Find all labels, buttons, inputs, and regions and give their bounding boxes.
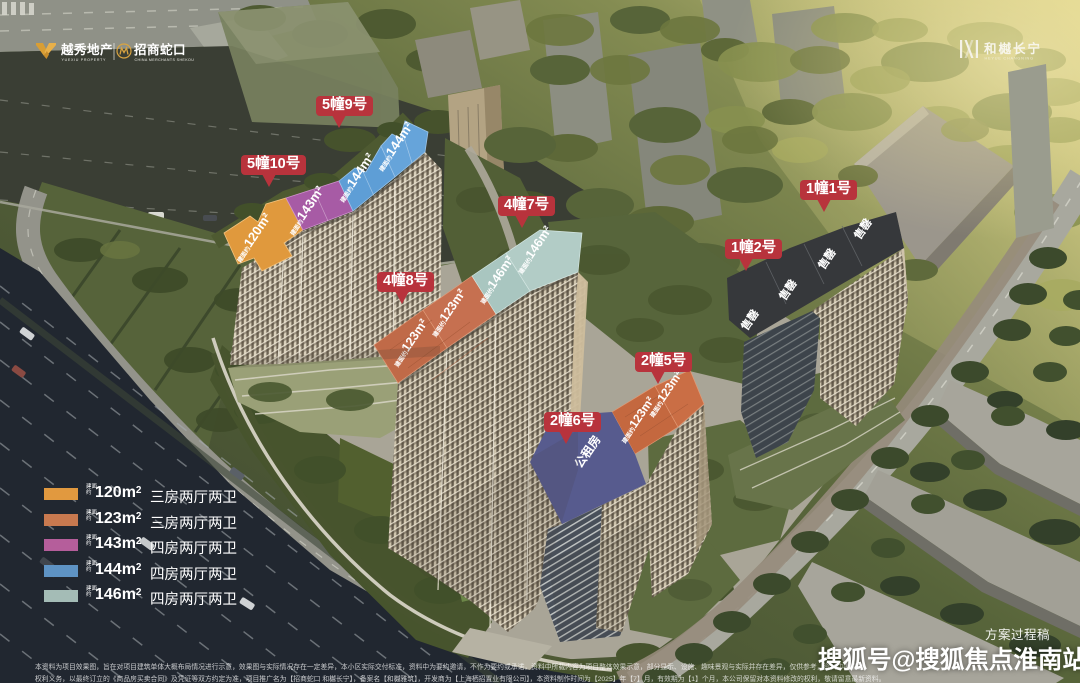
svg-text:YUEXIU PROPERTY: YUEXIU PROPERTY [62,58,107,62]
svg-text:招商蛇口: 招商蛇口 [134,42,186,57]
svg-text:HEYUE CHANGNING: HEYUE CHANGNING [985,57,1034,61]
svg-text:越秀地产: 越秀地产 [60,42,113,57]
svg-text:和樾长宁: 和樾长宁 [983,41,1042,56]
svg-text:CHINA MERCHANTS SHEKOU: CHINA MERCHANTS SHEKOU [135,58,195,62]
